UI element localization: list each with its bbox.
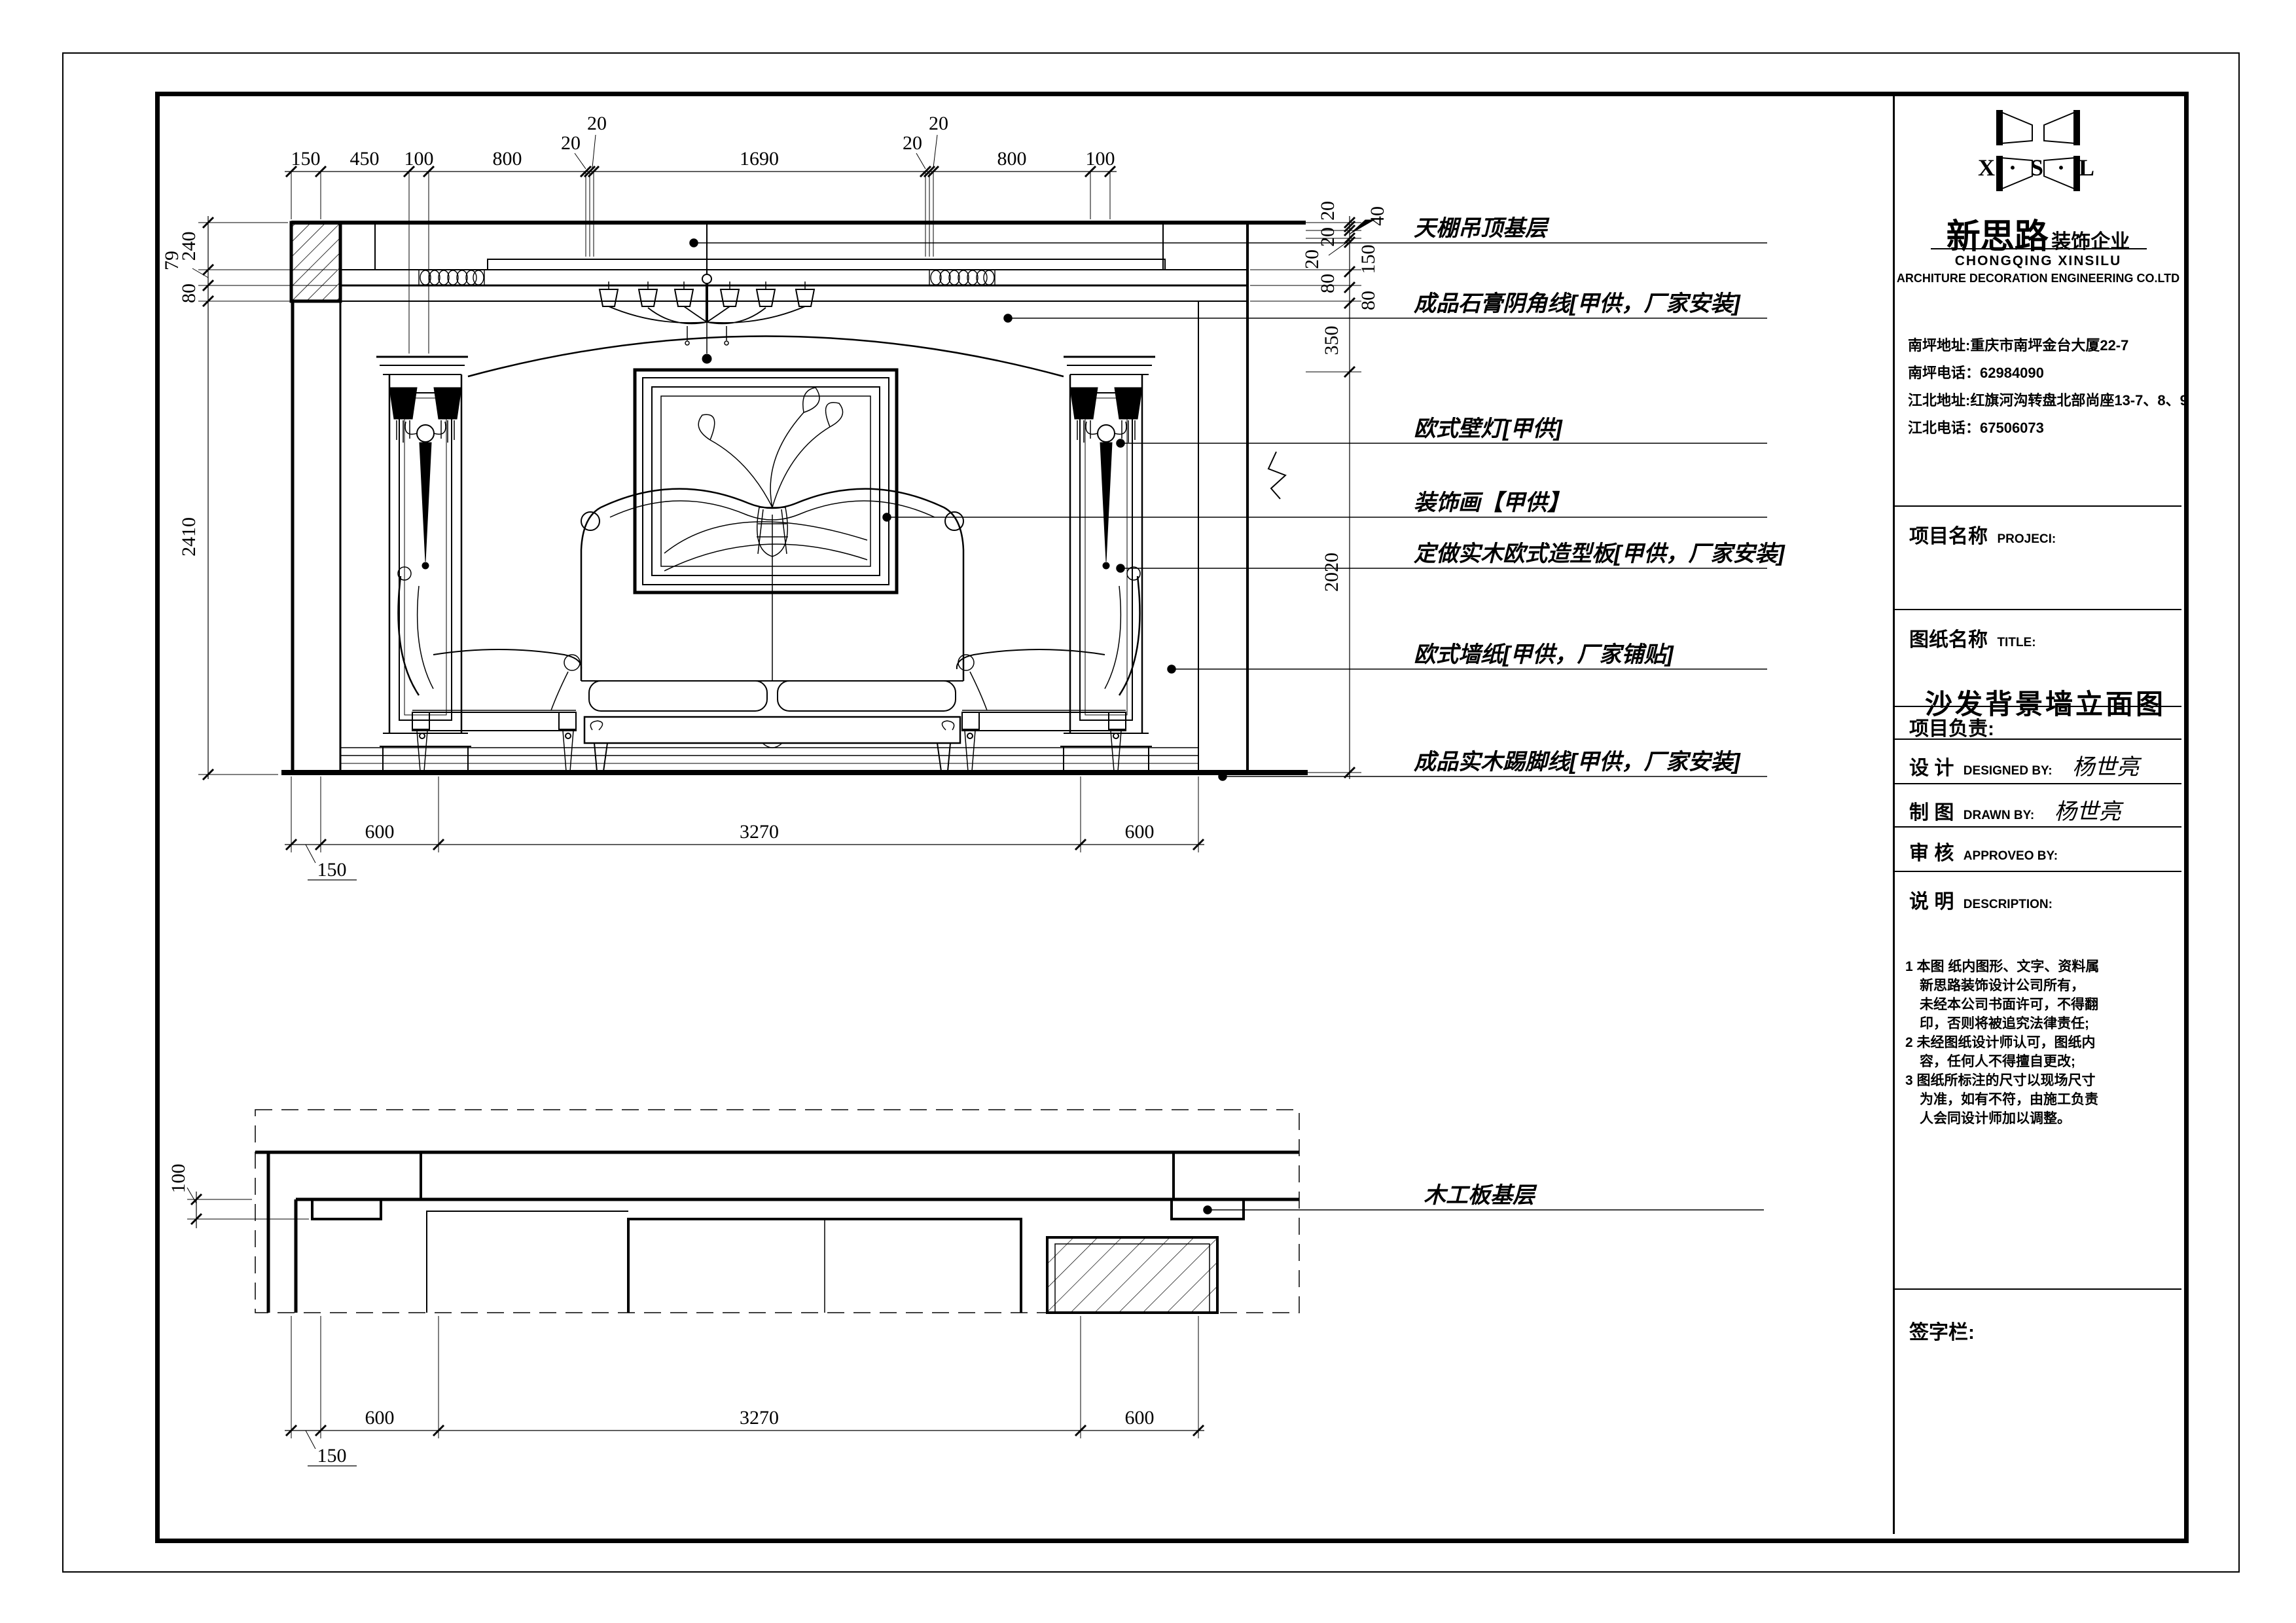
wall-section-hatch — [291, 223, 340, 301]
company-en2: ARCHITURE DECORATION ENGINEERING CO.LTD — [1895, 272, 2181, 285]
note-line: 印，否则将被追究法律责任; — [1905, 1014, 2099, 1033]
dim-label: 100 — [168, 1164, 189, 1194]
dim-label: 3270 — [740, 821, 779, 843]
callout-ceiling-base: 天棚吊顶基层 — [1414, 216, 1550, 241]
sofa — [581, 489, 963, 771]
note-line: 未经本公司书面许可，不得翻 — [1905, 995, 2099, 1014]
dim-label: 80 — [1357, 291, 1379, 310]
drawing-label: 图纸名称 — [1909, 629, 1988, 651]
callout-leaders — [690, 239, 1767, 1214]
logo-letters: X · S · L — [1895, 154, 2181, 181]
note-line: 新思路装饰设计公司所有， — [1905, 976, 2099, 995]
dim-right-chain — [1250, 216, 1374, 779]
dim-label: 20 — [561, 132, 581, 154]
draft-label: 制 图 — [1909, 802, 1954, 824]
ceiling-drop-panel — [488, 259, 1165, 270]
callout-painting: 装饰画【甲供】 — [1414, 490, 1570, 515]
note-line: 3 图纸所标注的尺寸以现场尺寸 — [1905, 1071, 2099, 1090]
drawing-sheet: 天棚吊顶基层 成品石膏阴角线[甲供，厂家安装] 欧式壁灯[甲供] 装饰画【甲供】… — [0, 0, 2296, 1623]
company-name-cn: 新思路 — [1946, 218, 2049, 256]
dim-label: 20 — [1317, 227, 1338, 247]
dim-lower-left — [187, 1188, 309, 1228]
section-hatch-block — [1047, 1237, 1217, 1313]
title-block: X · S · L 新思路 装饰企业 CHONGQING XINSILU ARC… — [1893, 96, 2181, 1534]
dim-label: 80 — [1317, 274, 1338, 293]
dim-label: 150 — [291, 148, 321, 170]
project-leader-row: 项目负责: — [1895, 706, 2181, 739]
drawn-by-row: 制 图 DRAWN BY: 杨世亮 — [1895, 783, 2181, 826]
dim-label: 20 — [903, 132, 922, 154]
note-line: 为准，如有不符，由施工负责 — [1905, 1090, 2099, 1109]
dim-label: 2020 — [1321, 553, 1342, 592]
callout-plywood-base: 木工板基层 — [1424, 1183, 1537, 1208]
dim-label: 40 — [1367, 206, 1388, 226]
callout-wallpaper: 欧式墙纸[甲供，厂家铺贴] — [1414, 642, 1674, 667]
designed-by-row: 设 计 DESIGNED BY: 杨世亮 — [1895, 739, 2181, 783]
dim-label: 350 — [1321, 326, 1342, 356]
dim-label: 800 — [997, 148, 1027, 170]
description-notes: 1 本图 纸内图形、文字、资料属 新思路装饰设计公司所有， 未经本公司书面许可，… — [1905, 957, 2099, 1128]
dim-label: 600 — [1125, 1407, 1155, 1429]
drawing-name-row: 图纸名称 TITLE: 沙发背景墙立面图 — [1895, 609, 2181, 706]
signature-row: 签字栏: — [1895, 1288, 2181, 1534]
dim-label: 150 — [317, 1445, 347, 1467]
description-row: 说 明 DESCRIPTION: 1 本图 纸内图形、文字、资料属 新思路装饰设… — [1895, 871, 2181, 1288]
signature-label: 签字栏: — [1909, 1322, 1975, 1343]
note-line: 容，任何人不得擅自更改; — [1905, 1052, 2099, 1071]
dim-label: 150 — [317, 859, 347, 881]
note-line: 1 本图 纸内图形、文字、资料属 — [1905, 957, 2099, 976]
company-header: X · S · L 新思路 装饰企业 CHONGQING XINSILU ARC… — [1895, 96, 2181, 505]
dim-label: 79 — [161, 251, 183, 270]
decorative-painting — [635, 370, 897, 593]
dim-label: 600 — [365, 1407, 395, 1429]
dim-label: 100 — [404, 148, 434, 170]
approved-by-row: 审 核 APPROVEO BY: — [1895, 826, 2181, 871]
note-line: 人会同设计师加以调整。 — [1905, 1109, 2099, 1128]
drawing-label-en: TITLE: — [1997, 636, 2036, 649]
address-line: 南坪电话：62984090 — [1908, 359, 2188, 387]
wall-lamp-right — [1070, 388, 1142, 569]
callout-wood-panel: 定做实木欧式造型板[甲供，厂家安装] — [1413, 541, 1785, 566]
dim-label: 150 — [1357, 245, 1379, 274]
dim-label: 20 — [1301, 249, 1323, 269]
company-en1: CHONGQING XINSILU — [1895, 253, 2181, 269]
wall-lamp-left — [389, 388, 461, 569]
dim-bottom-lower — [285, 1316, 1204, 1466]
dim-label: 600 — [365, 821, 395, 843]
desc-label-en: DESCRIPTION: — [1964, 898, 2053, 911]
dim-label: 20 — [929, 113, 948, 134]
note-line: 2 未经图纸设计师认可，图纸内 — [1905, 1033, 2099, 1052]
dim-label: 20 — [1317, 201, 1338, 221]
draft-label-en: DRAWN BY: — [1964, 809, 2034, 822]
address-line: 江北地址:红旗河沟转盘北部尚座13-7、8、9 — [1908, 387, 2188, 414]
elevation-structure — [281, 223, 1308, 773]
break-line — [1268, 452, 1285, 499]
company-addresses: 南坪地址:重庆市南坪金台大厦22-7 南坪电话：62984090 江北地址:红旗… — [1908, 332, 2188, 442]
address-line: 南坪地址:重庆市南坪金台大厦22-7 — [1908, 332, 2188, 359]
armchair-right — [957, 567, 1140, 771]
dim-label: 800 — [493, 148, 522, 170]
dim-label: 3270 — [740, 1407, 779, 1429]
address-line: 江北电话：67506073 — [1908, 414, 2188, 442]
dim-label: 2410 — [178, 517, 200, 556]
design-label-en: DESIGNED BY: — [1964, 764, 2053, 778]
design-label: 设 计 — [1909, 757, 1954, 779]
cove-moulding-right — [929, 270, 995, 285]
approve-label: 审 核 — [1909, 843, 1954, 864]
dim-label: 450 — [350, 148, 380, 170]
dim-label: 600 — [1125, 821, 1155, 843]
project-label: 项目名称 — [1909, 526, 1988, 547]
approve-label-en: APPROVEO BY: — [1964, 849, 2058, 863]
callout-plaster-cove: 成品石膏阴角线[甲供，厂家安装] — [1414, 291, 1741, 316]
project-label-en: PROJECI: — [1997, 532, 2056, 546]
desc-label: 说 明 — [1909, 891, 1954, 913]
company-name: 新思路 装饰企业 — [1895, 209, 2181, 258]
company-name-suffix: 装饰企业 — [2051, 231, 2130, 253]
dim-label: 20 — [587, 113, 607, 134]
armchair-left — [398, 567, 581, 771]
project-name-row: 项目名称 PROJECI: — [1895, 505, 2181, 609]
dim-label: 1690 — [740, 148, 779, 170]
designer-name: 杨世亮 — [2072, 756, 2139, 780]
groove-left — [312, 1199, 381, 1219]
callout-skirting: 成品实木踢脚线[甲供，厂家安装] — [1414, 750, 1741, 775]
project-leader-label: 项目负责: — [1909, 718, 1994, 740]
dim-label: 100 — [1086, 148, 1115, 170]
chandelier — [600, 223, 814, 363]
plan-section — [255, 1110, 1299, 1313]
callout-wall-lamp: 欧式壁灯[甲供] — [1414, 416, 1563, 441]
drafter-name: 杨世亮 — [2054, 800, 2121, 824]
dim-label: 80 — [178, 283, 200, 303]
company-underline — [1931, 248, 2147, 249]
